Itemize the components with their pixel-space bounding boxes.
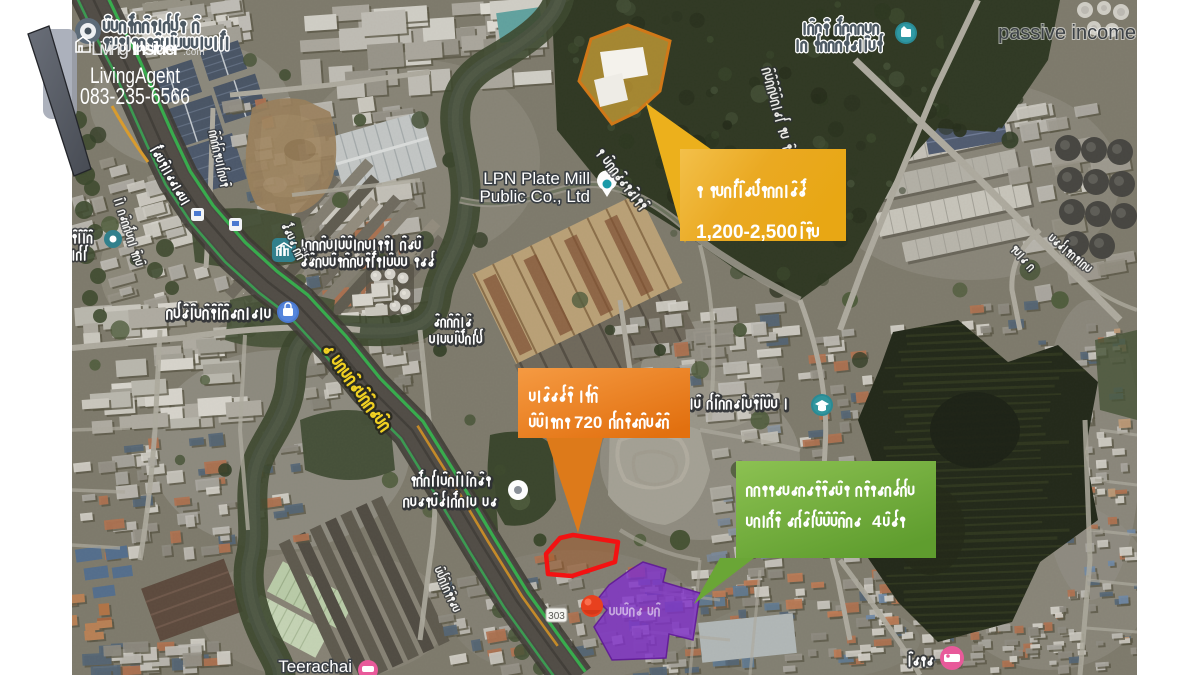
svg-text:Teerachai: Teerachai <box>278 657 352 675</box>
svg-text:Insider: Insider <box>132 39 181 60</box>
svg-text:.com: .com <box>183 47 205 58</box>
svg-text:083-235-6566: 083-235-6566 <box>80 83 190 109</box>
svg-text:passive income: passive income <box>998 22 1136 44</box>
svg-text:Public Co., Ltd: Public Co., Ltd <box>479 187 590 206</box>
svg-text:720: 720 <box>574 413 602 432</box>
svg-text:Living: Living <box>91 39 129 60</box>
svg-text:303: 303 <box>548 611 565 622</box>
svg-text:LPN Plate Mill: LPN Plate Mill <box>483 169 590 188</box>
svg-text:4: 4 <box>872 512 882 531</box>
svg-text:1,200-2,500: 1,200-2,500 <box>696 222 797 243</box>
